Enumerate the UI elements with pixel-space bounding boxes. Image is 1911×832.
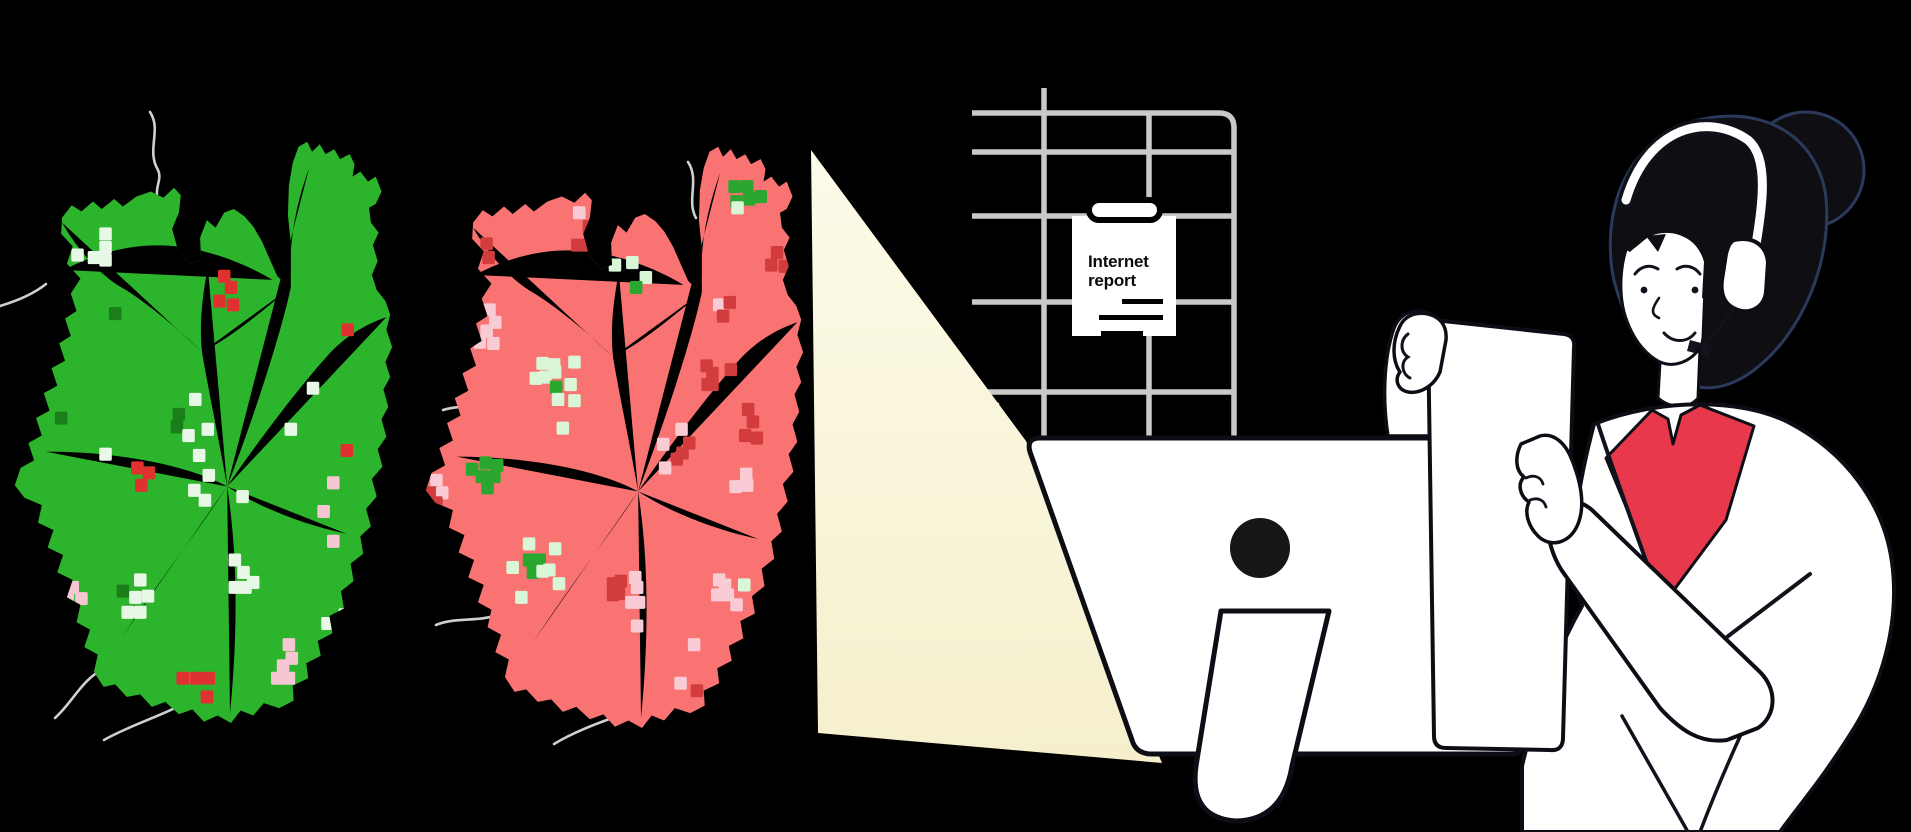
map-dot bbox=[190, 672, 203, 685]
map-dot bbox=[339, 608, 352, 621]
map-dot bbox=[609, 259, 622, 272]
map-dot bbox=[480, 237, 493, 250]
map-dot bbox=[706, 367, 719, 380]
map-dot bbox=[227, 298, 240, 311]
map-dot bbox=[218, 270, 231, 283]
map-dot bbox=[633, 596, 646, 609]
map-dot bbox=[630, 281, 643, 294]
map-dot bbox=[688, 638, 701, 651]
crack-line bbox=[436, 615, 497, 625]
map-dot bbox=[738, 578, 751, 591]
map-dot bbox=[724, 296, 737, 309]
map-dot bbox=[271, 672, 284, 685]
map-dot bbox=[717, 310, 730, 323]
map-dot bbox=[327, 535, 340, 548]
map-dot bbox=[626, 256, 639, 269]
map-dot bbox=[134, 606, 147, 619]
map-dot bbox=[236, 490, 249, 503]
map-dot bbox=[691, 684, 704, 697]
report-text-line bbox=[1099, 315, 1163, 320]
map-dot bbox=[729, 480, 742, 493]
map-dot bbox=[568, 394, 581, 407]
map-dot bbox=[523, 537, 536, 550]
map-dot bbox=[491, 459, 504, 472]
map-dot bbox=[341, 323, 354, 336]
map-dot bbox=[657, 438, 670, 451]
headset-earcup-icon bbox=[1722, 239, 1768, 311]
healthy-map bbox=[15, 142, 392, 723]
map-dot bbox=[479, 456, 492, 469]
map-dot bbox=[751, 432, 764, 445]
map-dot bbox=[340, 637, 353, 650]
map-dot bbox=[728, 180, 741, 193]
map-dot bbox=[188, 484, 201, 497]
map-dot bbox=[199, 494, 212, 507]
map-dot bbox=[189, 393, 202, 406]
map-dot bbox=[741, 180, 754, 193]
map-dot bbox=[771, 246, 784, 259]
map-dot bbox=[474, 336, 487, 349]
camera-dot bbox=[1230, 518, 1290, 578]
map-dot bbox=[748, 703, 761, 716]
report-card-sheet: Internet report bbox=[1072, 216, 1176, 336]
map-dot bbox=[779, 260, 792, 273]
map-dot bbox=[277, 659, 290, 672]
map-dot bbox=[317, 505, 330, 518]
map-dot bbox=[171, 420, 184, 433]
map-dot bbox=[740, 468, 753, 481]
map-dot bbox=[202, 423, 215, 436]
map-dot bbox=[549, 542, 562, 555]
map-dot bbox=[142, 590, 155, 603]
map-dot bbox=[549, 366, 562, 379]
map-dot bbox=[552, 393, 565, 406]
internet-report-card: Internet report bbox=[1072, 197, 1176, 336]
map-dot bbox=[488, 470, 501, 483]
map-dot bbox=[743, 193, 756, 206]
map-dot bbox=[62, 592, 75, 605]
map-dot bbox=[430, 474, 443, 487]
map-dot bbox=[747, 415, 760, 428]
map-dot bbox=[239, 581, 252, 594]
map-dot bbox=[583, 220, 596, 233]
map-dot bbox=[341, 444, 354, 457]
map-dot bbox=[99, 448, 112, 461]
illustration-scene bbox=[0, 0, 1911, 832]
map-dot bbox=[659, 461, 672, 474]
map-dot bbox=[550, 380, 563, 393]
report-text-line bbox=[1122, 299, 1163, 304]
map-dot bbox=[99, 227, 112, 240]
report-title: Internet report bbox=[1088, 252, 1158, 290]
map-dot bbox=[143, 466, 156, 479]
map-dot bbox=[182, 429, 195, 442]
map-dot bbox=[759, 709, 772, 722]
map-dot bbox=[203, 672, 216, 685]
map-dot bbox=[55, 412, 68, 425]
map-dot bbox=[631, 581, 644, 594]
map-dot bbox=[480, 324, 493, 337]
map-dot bbox=[674, 677, 687, 690]
report-text-line bbox=[1101, 331, 1143, 336]
map-dot bbox=[582, 239, 595, 252]
map-dot bbox=[173, 408, 186, 421]
map-dot bbox=[283, 638, 296, 651]
map-dot bbox=[487, 337, 500, 350]
map-dot bbox=[573, 206, 586, 219]
map-dot bbox=[568, 356, 581, 369]
map-dot bbox=[283, 672, 296, 685]
map-dot bbox=[564, 378, 577, 391]
map-dot bbox=[593, 230, 606, 243]
map-dot bbox=[476, 470, 489, 483]
eye bbox=[1641, 287, 1648, 294]
outage-map bbox=[422, 147, 803, 728]
map-dot bbox=[201, 690, 214, 703]
map-dot bbox=[135, 479, 148, 492]
illustration-canvas: Internet report bbox=[0, 0, 1911, 832]
eye bbox=[1692, 287, 1699, 294]
map-dot bbox=[307, 382, 320, 395]
map-dot bbox=[131, 461, 144, 474]
map-dot bbox=[193, 449, 206, 462]
map-dot bbox=[481, 481, 494, 494]
map-dot bbox=[730, 598, 743, 611]
map-dot bbox=[321, 617, 334, 630]
map-dot bbox=[285, 423, 298, 436]
map-dot bbox=[557, 422, 570, 435]
map-dot bbox=[731, 201, 744, 214]
crack-line bbox=[688, 162, 696, 218]
map-dot bbox=[176, 672, 189, 685]
map-dot bbox=[88, 251, 101, 264]
map-dot bbox=[203, 469, 216, 482]
woman-illustration bbox=[1385, 112, 1894, 832]
map-dot bbox=[741, 479, 754, 492]
map-dot bbox=[121, 606, 134, 619]
map-dot bbox=[482, 251, 495, 264]
map-dot bbox=[754, 190, 767, 203]
crack-line bbox=[0, 284, 46, 306]
map-dot bbox=[225, 281, 238, 294]
map-dot bbox=[71, 249, 84, 262]
map-dot bbox=[129, 591, 142, 604]
map-dot bbox=[109, 307, 122, 320]
map-dot bbox=[631, 619, 644, 632]
map-dot bbox=[99, 241, 112, 254]
map-dot bbox=[765, 259, 778, 272]
map-dot bbox=[675, 423, 688, 436]
clip-icon bbox=[1086, 197, 1163, 223]
map-dot bbox=[706, 378, 719, 391]
map-dot bbox=[99, 254, 112, 267]
map-dot bbox=[327, 476, 340, 489]
map-dot bbox=[515, 591, 528, 604]
crack-line bbox=[150, 112, 159, 194]
map-dot bbox=[613, 587, 626, 600]
map-dot bbox=[134, 573, 147, 586]
map-dot bbox=[543, 563, 556, 576]
map-dot bbox=[596, 220, 609, 233]
map-dot bbox=[213, 295, 226, 308]
map-dot bbox=[75, 592, 88, 605]
map-dot bbox=[506, 561, 519, 574]
map-dot bbox=[614, 575, 627, 588]
map-dot bbox=[536, 357, 549, 370]
map-dot bbox=[66, 581, 79, 594]
map-dot bbox=[483, 303, 496, 316]
map-dot bbox=[742, 403, 755, 416]
map-dot bbox=[724, 363, 737, 376]
map-dot bbox=[739, 429, 752, 442]
map-dot bbox=[430, 496, 443, 509]
map-dot bbox=[229, 553, 242, 566]
map-dot bbox=[117, 585, 130, 598]
map-dot bbox=[670, 453, 683, 466]
map-dot bbox=[553, 577, 566, 590]
